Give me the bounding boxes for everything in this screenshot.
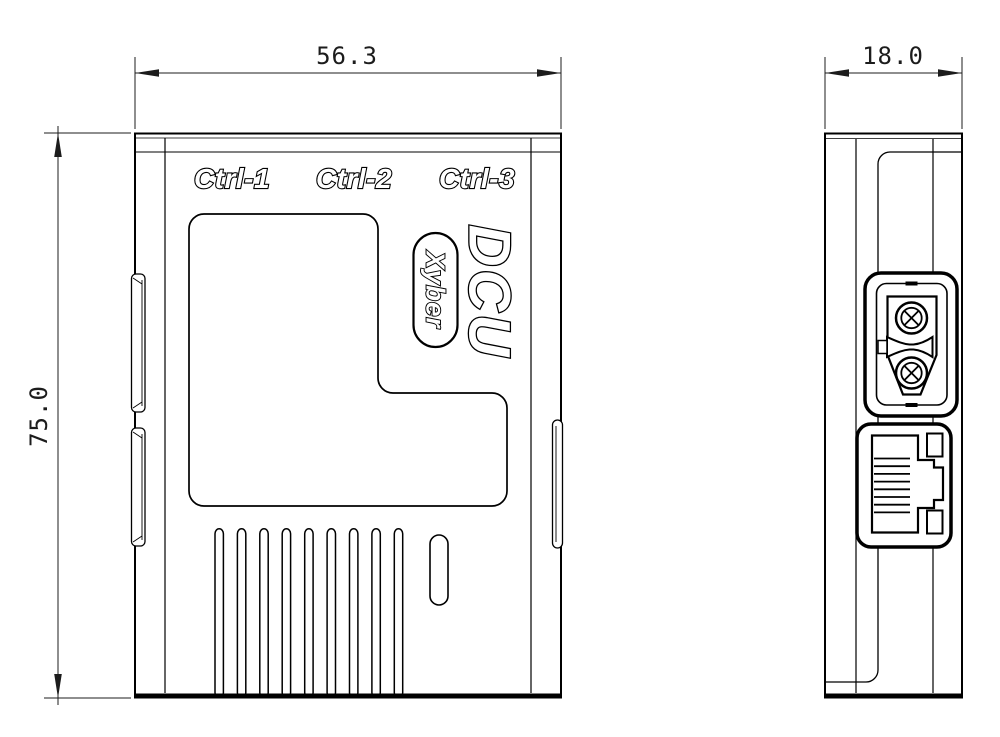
vent-slot bbox=[282, 529, 290, 698]
front-bottom-edge bbox=[134, 694, 562, 699]
dim-arrow-right bbox=[537, 69, 561, 77]
front-body-outline bbox=[135, 134, 561, 698]
vent-slot bbox=[237, 529, 245, 698]
product-name-label: DCU bbox=[457, 225, 522, 360]
dim-front-height-text: 75.0 bbox=[25, 385, 53, 447]
vent-slot bbox=[215, 529, 223, 698]
dim-arrow-left bbox=[135, 69, 159, 77]
dimension-front-width: 56.3 bbox=[135, 42, 561, 129]
oblong-slot bbox=[430, 535, 448, 605]
rj45-tab-top bbox=[927, 434, 943, 457]
brand-name-label: Xyber bbox=[421, 249, 451, 329]
rj45-tab-bottom bbox=[927, 511, 943, 534]
vent-slot bbox=[372, 529, 380, 698]
mount-clip-right bbox=[553, 420, 563, 548]
vent-slot bbox=[260, 529, 268, 698]
vent-grid bbox=[215, 529, 403, 698]
vent-slot bbox=[350, 529, 358, 698]
dim-arrow-up bbox=[54, 133, 62, 157]
rj45-ethernet-port bbox=[857, 424, 951, 547]
vent-slot bbox=[305, 529, 313, 698]
engineering-drawing-canvas: Ctrl-1 Ctrl-2 Ctrl-3 DCU Xyber bbox=[0, 0, 1000, 737]
front-view: Ctrl-1 Ctrl-2 Ctrl-3 DCU Xyber bbox=[132, 134, 563, 699]
dim-arrow-down bbox=[54, 674, 62, 698]
side-view bbox=[824, 134, 963, 699]
dim-arrow-right bbox=[938, 69, 962, 77]
mount-clip-left-lower bbox=[132, 428, 146, 546]
dim-side-depth-text: 18.0 bbox=[862, 42, 924, 70]
ctrl-3-label: Ctrl-3 bbox=[439, 163, 515, 194]
drawing-svg: Ctrl-1 Ctrl-2 Ctrl-3 DCU Xyber bbox=[0, 0, 1000, 737]
xt30-power-connector bbox=[865, 273, 957, 416]
ctrl-2-label: Ctrl-2 bbox=[316, 163, 392, 194]
vent-slot bbox=[327, 529, 335, 698]
dim-front-width-text: 56.3 bbox=[316, 42, 378, 70]
vent-slot bbox=[394, 529, 402, 698]
dimension-front-height: 75.0 bbox=[25, 126, 131, 705]
mount-clip-left-upper bbox=[132, 274, 146, 412]
side-bottom-edge bbox=[824, 694, 963, 699]
dimension-side-depth: 18.0 bbox=[825, 42, 962, 129]
dim-arrow-left bbox=[825, 69, 849, 77]
ctrl-1-label: Ctrl-1 bbox=[194, 163, 270, 194]
xt30-key-tab bbox=[878, 341, 887, 354]
